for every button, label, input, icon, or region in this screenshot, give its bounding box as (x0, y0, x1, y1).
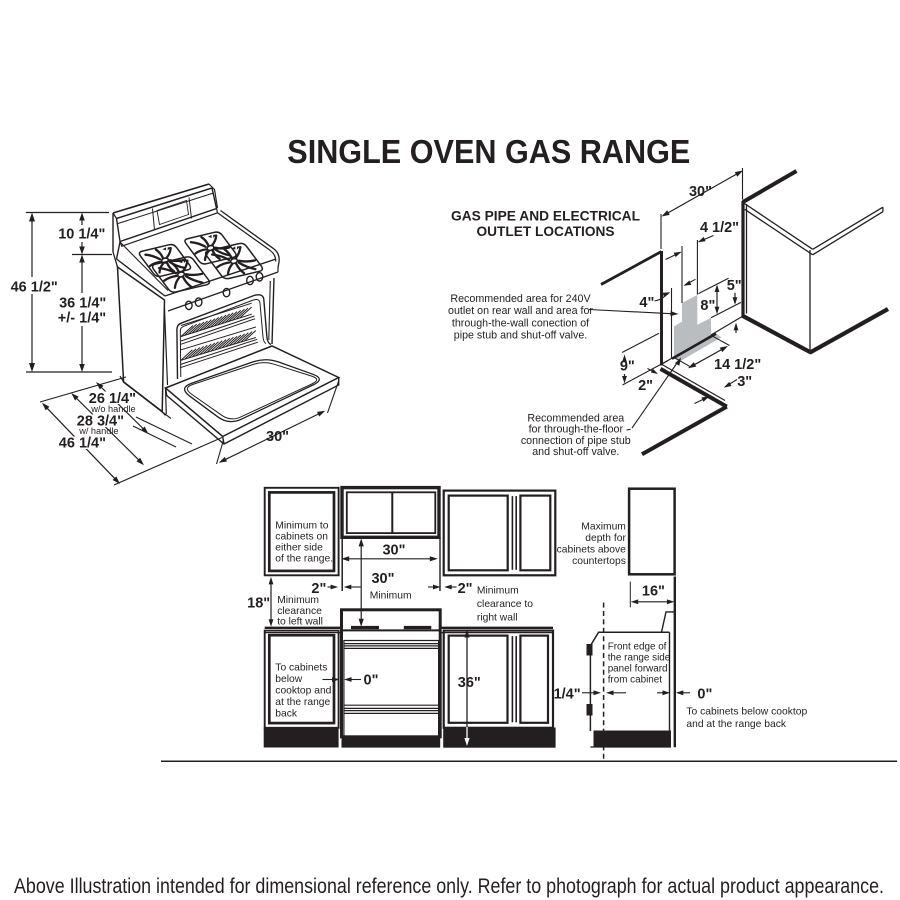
svg-text:clearance to: clearance to (477, 599, 533, 610)
svg-text:cooktop and: cooktop and (275, 686, 331, 697)
svg-text:w/o handle: w/o handle (90, 404, 135, 414)
svg-text:46 1/4": 46 1/4" (59, 436, 106, 452)
svg-text:of the range.: of the range. (275, 554, 333, 565)
svg-text:36 1/4": 36 1/4" (59, 295, 106, 311)
svg-text:the range side: the range side (608, 653, 671, 664)
svg-text:9": 9" (620, 358, 635, 374)
svg-text:Minimum: Minimum (370, 591, 412, 602)
svg-text:panel forward: panel forward (608, 664, 668, 675)
svg-text:for through-the-floor: for through-the-floor (529, 424, 624, 436)
svg-text:either side: either side (275, 543, 323, 554)
svg-text:2": 2" (458, 581, 473, 597)
svg-text:0": 0" (697, 687, 712, 703)
svg-text:below: below (275, 674, 302, 685)
svg-text:cabinets above: cabinets above (557, 545, 627, 556)
svg-text:Minimum: Minimum (277, 595, 319, 606)
svg-text:through-the-wall conection of: through-the-wall conection of (452, 317, 589, 329)
svg-text:36": 36" (458, 675, 481, 691)
svg-text:connection of pipe stub: connection of pipe stub (521, 435, 631, 447)
svg-text:cabinets on: cabinets on (275, 532, 328, 543)
svg-text:5": 5" (727, 278, 742, 294)
svg-text:right wall: right wall (477, 613, 518, 624)
svg-text:30": 30" (371, 571, 394, 587)
svg-text:4 1/2": 4 1/2" (700, 220, 739, 236)
svg-text:and at the range back: and at the range back (686, 719, 786, 730)
svg-text:8": 8" (700, 298, 715, 314)
svg-text:depth for: depth for (585, 533, 626, 544)
svg-text:and shut-off valve.: and shut-off valve. (532, 446, 619, 458)
svg-text:+/- 1/4": +/- 1/4" (58, 310, 106, 326)
svg-text:clearance: clearance (277, 606, 322, 617)
svg-text:Minimum: Minimum (477, 586, 519, 597)
svg-text:OUTLET LOCATIONS: OUTLET LOCATIONS (477, 224, 615, 240)
svg-text:Minimum to: Minimum to (275, 521, 328, 532)
svg-text:2": 2" (638, 378, 653, 394)
svg-text:18": 18" (247, 595, 270, 611)
svg-text:at the range: at the range (275, 697, 330, 708)
svg-text:Above Illustration intended fo: Above Illustration intended for dimensio… (14, 874, 884, 898)
svg-text:To cabinets below cooktop: To cabinets below cooktop (686, 707, 807, 718)
svg-text:back: back (275, 709, 298, 720)
svg-text:Front edge of: Front edge of (608, 642, 667, 653)
svg-text:16": 16" (642, 584, 665, 600)
svg-text:countertops: countertops (572, 556, 626, 567)
svg-text:pipe stub and shut-off valve.: pipe stub and shut-off valve. (454, 330, 587, 342)
svg-text:Recommended area for 240V: Recommended area for 240V (450, 293, 591, 305)
svg-text:4": 4" (639, 295, 654, 311)
svg-text:30": 30" (382, 542, 405, 558)
svg-text:Recommended area: Recommended area (527, 412, 624, 424)
svg-text:Maximum: Maximum (581, 522, 626, 533)
svg-text:SINGLE OVEN GAS RANGE: SINGLE OVEN GAS RANGE (287, 133, 690, 170)
svg-text:14 1/2": 14 1/2" (714, 357, 761, 373)
svg-text:To cabinets: To cabinets (275, 663, 327, 674)
svg-text:from cabinet: from cabinet (608, 675, 663, 686)
svg-text:46 1/2": 46 1/2" (11, 279, 58, 295)
svg-text:to left wall: to left wall (277, 617, 323, 628)
svg-text:1/4": 1/4" (554, 687, 581, 703)
svg-text:GAS PIPE AND ELECTRICAL: GAS PIPE AND ELECTRICAL (451, 209, 640, 225)
svg-text:30": 30" (266, 429, 289, 445)
svg-text:3": 3" (737, 374, 752, 390)
svg-text:10 1/4": 10 1/4" (58, 227, 105, 243)
svg-text:outlet on rear wall and area f: outlet on rear wall and area for (448, 305, 593, 317)
svg-text:30": 30" (689, 184, 712, 200)
svg-text:0": 0" (364, 672, 379, 688)
